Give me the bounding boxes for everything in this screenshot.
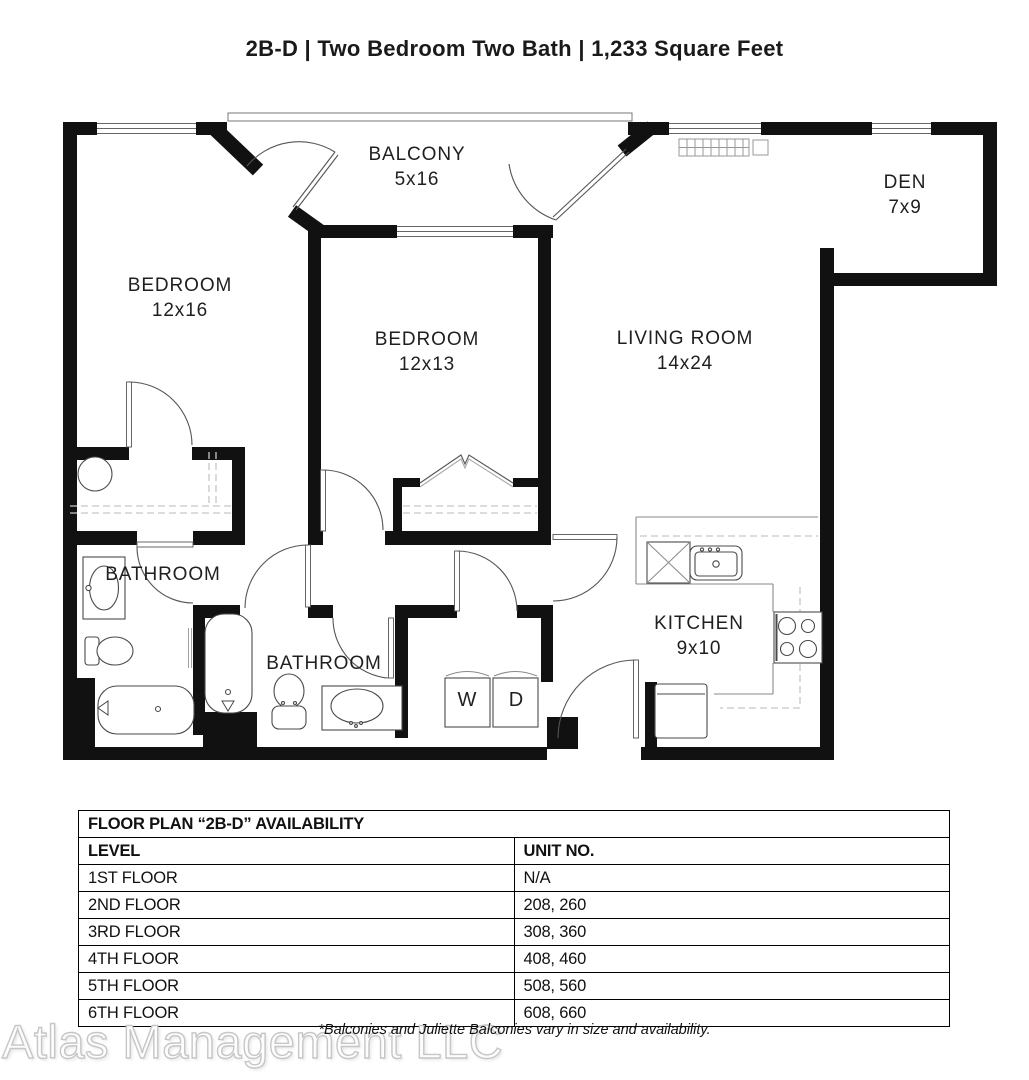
dryer-label: D <box>509 689 523 711</box>
room-dims-balcony: 5x16 <box>395 169 440 190</box>
col-header-unit: UNIT NO. <box>514 838 950 865</box>
table-row: 3RD FLOOR 308, 360 <box>79 919 950 946</box>
window-den <box>867 122 936 135</box>
bedroom-middle-closet-bifold <box>420 455 513 487</box>
walls <box>63 122 997 760</box>
window-living-room <box>664 122 766 135</box>
sink-icon <box>322 686 402 730</box>
balcony-door-left <box>247 142 338 210</box>
table-row: 1ST FLOOR N/A <box>79 865 950 892</box>
bedroom-middle-door <box>321 470 384 531</box>
table-title: FLOOR PLAN “2B-D” AVAILABILITY <box>79 811 950 838</box>
bathtub-icon <box>205 614 252 713</box>
room-label-bathroom-left: BATHROOM <box>105 564 221 585</box>
room-label-den: DEN <box>884 172 927 193</box>
units-cell: 308, 360 <box>514 919 950 946</box>
washer-label: W <box>458 689 477 711</box>
kitchen-sink-icon <box>690 546 742 580</box>
table-row: 5TH FLOOR 508, 560 <box>79 973 950 1000</box>
toilet-icon <box>272 674 306 729</box>
bedroom-left-closet-door <box>127 382 193 447</box>
laundry-door <box>455 551 518 611</box>
room-dims-living-room: 14x24 <box>657 353 713 374</box>
availability-table: FLOOR PLAN “2B-D” AVAILABILITY LEVEL UNI… <box>78 810 950 1027</box>
room-dims-den: 7x9 <box>888 197 921 218</box>
level-cell: 4TH FLOOR <box>79 946 515 973</box>
units-cell: 208, 260 <box>514 892 950 919</box>
table-row: 2ND FLOOR 208, 260 <box>79 892 950 919</box>
window-bedroom-middle <box>392 225 518 238</box>
room-dims-kitchen: 9x10 <box>677 638 722 659</box>
balcony-door-right <box>509 149 629 220</box>
room-labels: BALCONY 5x16 DEN 7x9 BEDROOM 12x16 BEDRO… <box>105 144 926 674</box>
stove-icon <box>774 612 822 663</box>
window-bedroom-left <box>92 122 201 135</box>
bathtub-icon <box>98 686 194 734</box>
level-cell: 1ST FLOOR <box>79 865 515 892</box>
room-label-bedroom-left: BEDROOM <box>128 275 232 296</box>
level-cell: 2ND FLOOR <box>79 892 515 919</box>
closet-dashes <box>70 452 537 513</box>
room-label-bedroom-middle: BEDROOM <box>375 329 479 350</box>
table-title-row: FLOOR PLAN “2B-D” AVAILABILITY <box>79 811 950 838</box>
room-dims-bedroom-left: 12x16 <box>152 300 208 321</box>
level-cell: 5TH FLOOR <box>79 973 515 1000</box>
units-cell: 408, 460 <box>514 946 950 973</box>
col-header-level: LEVEL <box>79 838 515 865</box>
floor-plan-page: 2B-D | Two Bedroom Two Bath | 1,233 Squa… <box>0 0 1029 1080</box>
room-dims-bedroom-middle: 12x13 <box>399 354 455 375</box>
units-cell: N/A <box>514 865 950 892</box>
laundry-closet: W D <box>445 672 538 728</box>
footnote: *Balconies and Juliette Balconies vary i… <box>0 1022 1029 1038</box>
toilet-icon <box>85 637 133 665</box>
room-label-living-room: LIVING ROOM <box>617 328 754 349</box>
room-label-bathroom-middle: BATHROOM <box>266 653 382 674</box>
level-cell: 3RD FLOOR <box>79 919 515 946</box>
room-label-balcony: BALCONY <box>368 144 465 165</box>
vent-grille-icon <box>679 139 768 156</box>
table-header-row: LEVEL UNIT NO. <box>79 838 950 865</box>
room-label-kitchen: KITCHEN <box>654 613 744 634</box>
table-row: 4TH FLOOR 408, 460 <box>79 946 950 973</box>
living-hall-door <box>553 535 617 602</box>
fridge-icon <box>655 684 707 738</box>
balcony-railing <box>228 113 632 121</box>
units-cell: 508, 560 <box>514 973 950 1000</box>
dishwasher-icon <box>647 542 690 583</box>
hall-door <box>245 545 311 608</box>
